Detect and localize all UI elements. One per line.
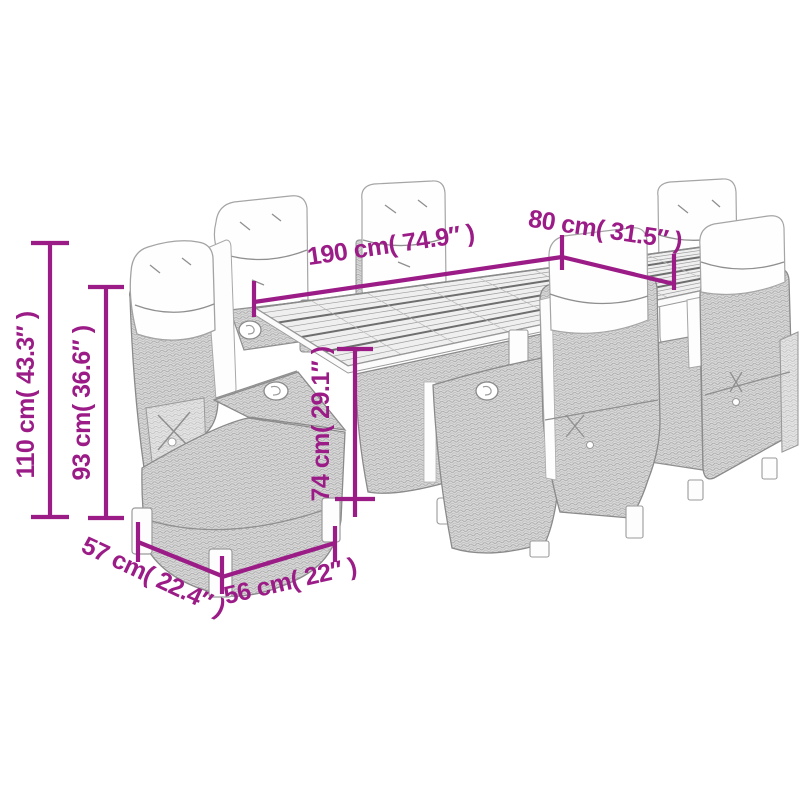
dimension-chair-height-label: 110 cm( 43.3″ ) <box>12 311 40 478</box>
strap-button <box>587 442 594 449</box>
head-pillow <box>130 241 215 340</box>
dimension-table-height-label: 74 cm( 29.1″ ) <box>307 346 335 501</box>
chair-foot <box>322 498 340 542</box>
chair-foot <box>626 506 643 538</box>
chair-foot <box>762 458 777 479</box>
armrest-right <box>780 332 798 452</box>
armrest-buckle <box>239 321 261 339</box>
head-pillow <box>700 216 785 295</box>
strap-button <box>168 438 176 446</box>
armrest-buckle <box>264 382 288 400</box>
chair-foot <box>530 541 549 557</box>
dimension-chair-back-height-label: 93 cm( 36.6″ ) <box>68 325 96 480</box>
product-dimension-image: 190 cm( 74.9″ ) 80 cm( 31.5″ ) 110 cm( 4… <box>0 0 800 800</box>
diagram-svg: 190 cm( 74.9″ ) 80 cm( 31.5″ ) 110 cm( 4… <box>0 0 800 800</box>
backrest-back <box>700 268 793 479</box>
armrest-buckle <box>476 382 498 400</box>
chair-foot <box>688 480 703 500</box>
strap-button <box>733 399 740 406</box>
